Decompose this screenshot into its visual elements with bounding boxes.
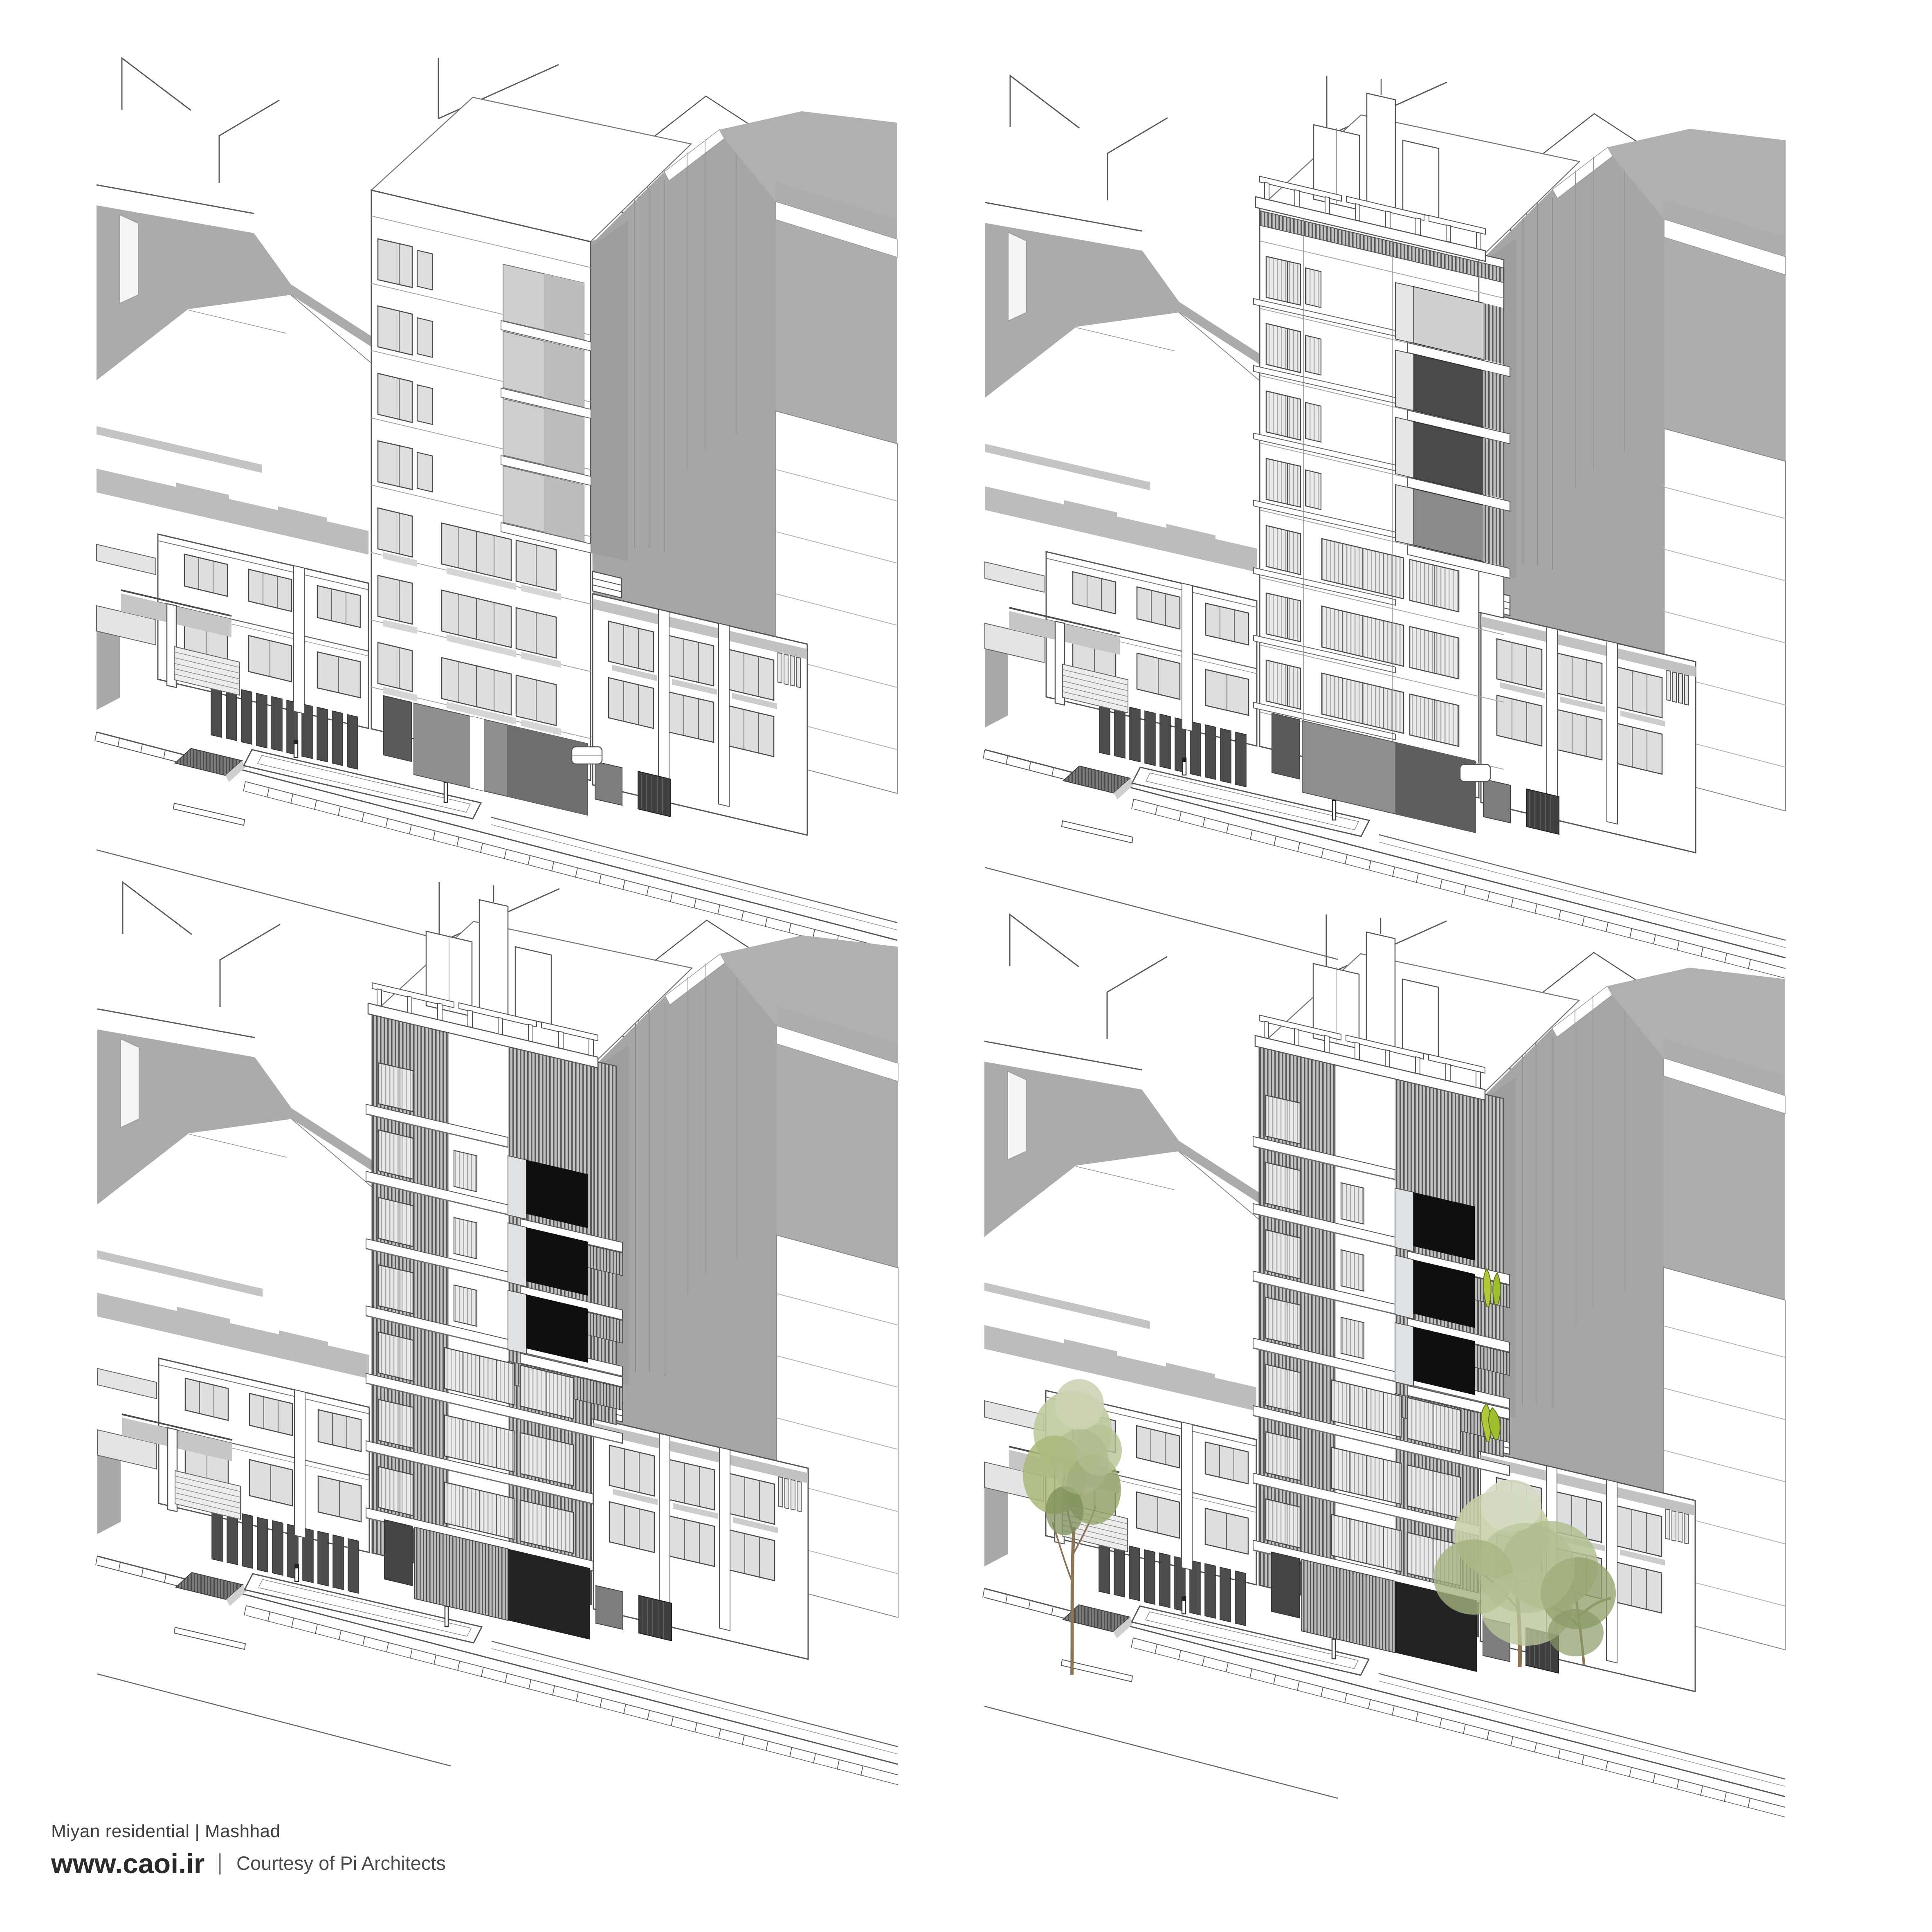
svg-text:|: | (217, 1849, 223, 1875)
svg-text:Miyan residential | Mashhad: Miyan residential | Mashhad (51, 1821, 281, 1841)
svg-text:www.caoi.ir: www.caoi.ir (51, 1848, 204, 1879)
svg-text:Courtesy of Pi Architects: Courtesy of Pi Architects (236, 1852, 446, 1874)
